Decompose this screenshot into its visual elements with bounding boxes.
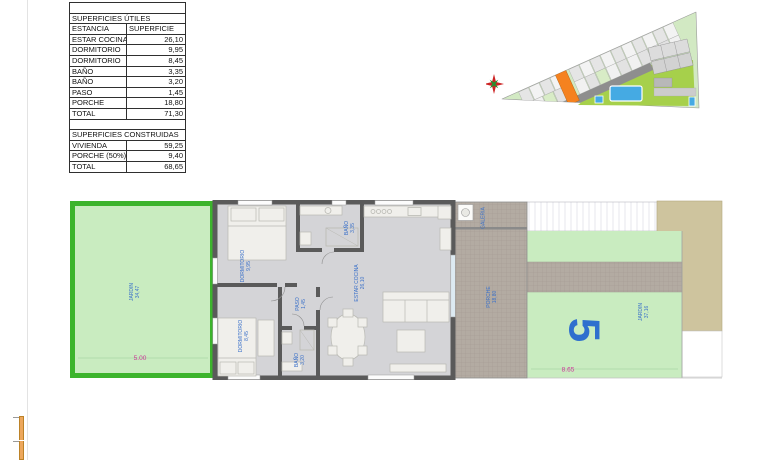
- table-total-row: TOTAL 68,65: [70, 161, 186, 172]
- community-pool: [610, 86, 642, 101]
- table-row: BAÑO 3,20: [70, 77, 186, 88]
- small-pool: [595, 96, 603, 103]
- scale-tick: [13, 417, 19, 418]
- dimension-left: 5.00: [134, 355, 147, 362]
- tv-bench: [390, 364, 446, 372]
- table-row: DORMITORIO 8,45: [70, 55, 186, 66]
- bed-main: [228, 206, 286, 260]
- svg-text:9,95: 9,95: [246, 261, 252, 271]
- table-empty-row: [70, 3, 186, 14]
- table-total-row: TOTAL 71,30: [70, 108, 186, 119]
- unit-number: 5: [560, 318, 609, 342]
- compass-rose-icon: [486, 74, 504, 94]
- construidas-title: SUPERFICIES CONSTRUIDAS: [70, 130, 186, 141]
- side-margin: [682, 331, 722, 377]
- garden-path: [527, 262, 682, 292]
- svg-text:1,45: 1,45: [301, 299, 307, 309]
- scale-bar: [19, 416, 24, 460]
- col-header-superficie: SUPERFICIE: [127, 24, 186, 35]
- utiles-title: SUPERFICIES ÚTILES: [70, 13, 186, 24]
- washing-machine-icon: [458, 205, 473, 221]
- svg-text:GALERIA: GALERIA: [481, 207, 487, 229]
- svg-text:34,47: 34,47: [135, 286, 141, 299]
- parking-strip: [654, 88, 696, 96]
- table-row: PORCHE (50%) 9,40: [70, 151, 186, 162]
- room-label-galeria: GALERIA: [481, 207, 487, 229]
- dimension-right: 8.65: [562, 367, 575, 374]
- col-header-estancia: ESTANCIA: [70, 24, 127, 35]
- table-empty-row: [70, 119, 186, 130]
- sofa: [383, 292, 449, 322]
- scale-bar-divider: [19, 440, 24, 441]
- room-label-paso: PASO 1,45: [295, 297, 307, 311]
- table-row: PORCHE 18,80: [70, 98, 186, 109]
- page-margin-guide: [27, 0, 28, 460]
- garden-left: [70, 201, 215, 378]
- table-row: DORMITORIO 9,95: [70, 45, 186, 56]
- house: [213, 201, 455, 380]
- plan-sheet: SUPERFICIES ÚTILES ESTANCIA SUPERFICIE E…: [0, 0, 770, 460]
- svg-text:26,10: 26,10: [360, 277, 366, 290]
- svg-text:8,45: 8,45: [244, 331, 250, 341]
- table-row: VIVIENDA 59,25: [70, 140, 186, 151]
- svg-text:18,80: 18,80: [492, 291, 498, 304]
- surface-table: SUPERFICIES ÚTILES ESTANCIA SUPERFICIE E…: [69, 2, 186, 173]
- coffee-table: [397, 330, 425, 352]
- small-pool-right: [689, 97, 695, 106]
- svg-text:37,16: 37,16: [644, 306, 650, 319]
- floor-plan: JARDIN 34,47 DORMITORIO 9,95 BAÑO 3,35 D…: [70, 200, 725, 380]
- site-plan: [486, 2, 712, 112]
- svg-text:3,35: 3,35: [350, 223, 356, 233]
- table-row: ESTAR COCINA 26,10: [70, 34, 186, 45]
- scale-tick: [13, 441, 19, 442]
- service-building: [654, 78, 672, 87]
- svg-text:3,20: 3,20: [300, 355, 306, 365]
- table-row: BAÑO 3,35: [70, 66, 186, 77]
- table-row: PASO 1,45: [70, 87, 186, 98]
- pergola-strip: [527, 202, 657, 231]
